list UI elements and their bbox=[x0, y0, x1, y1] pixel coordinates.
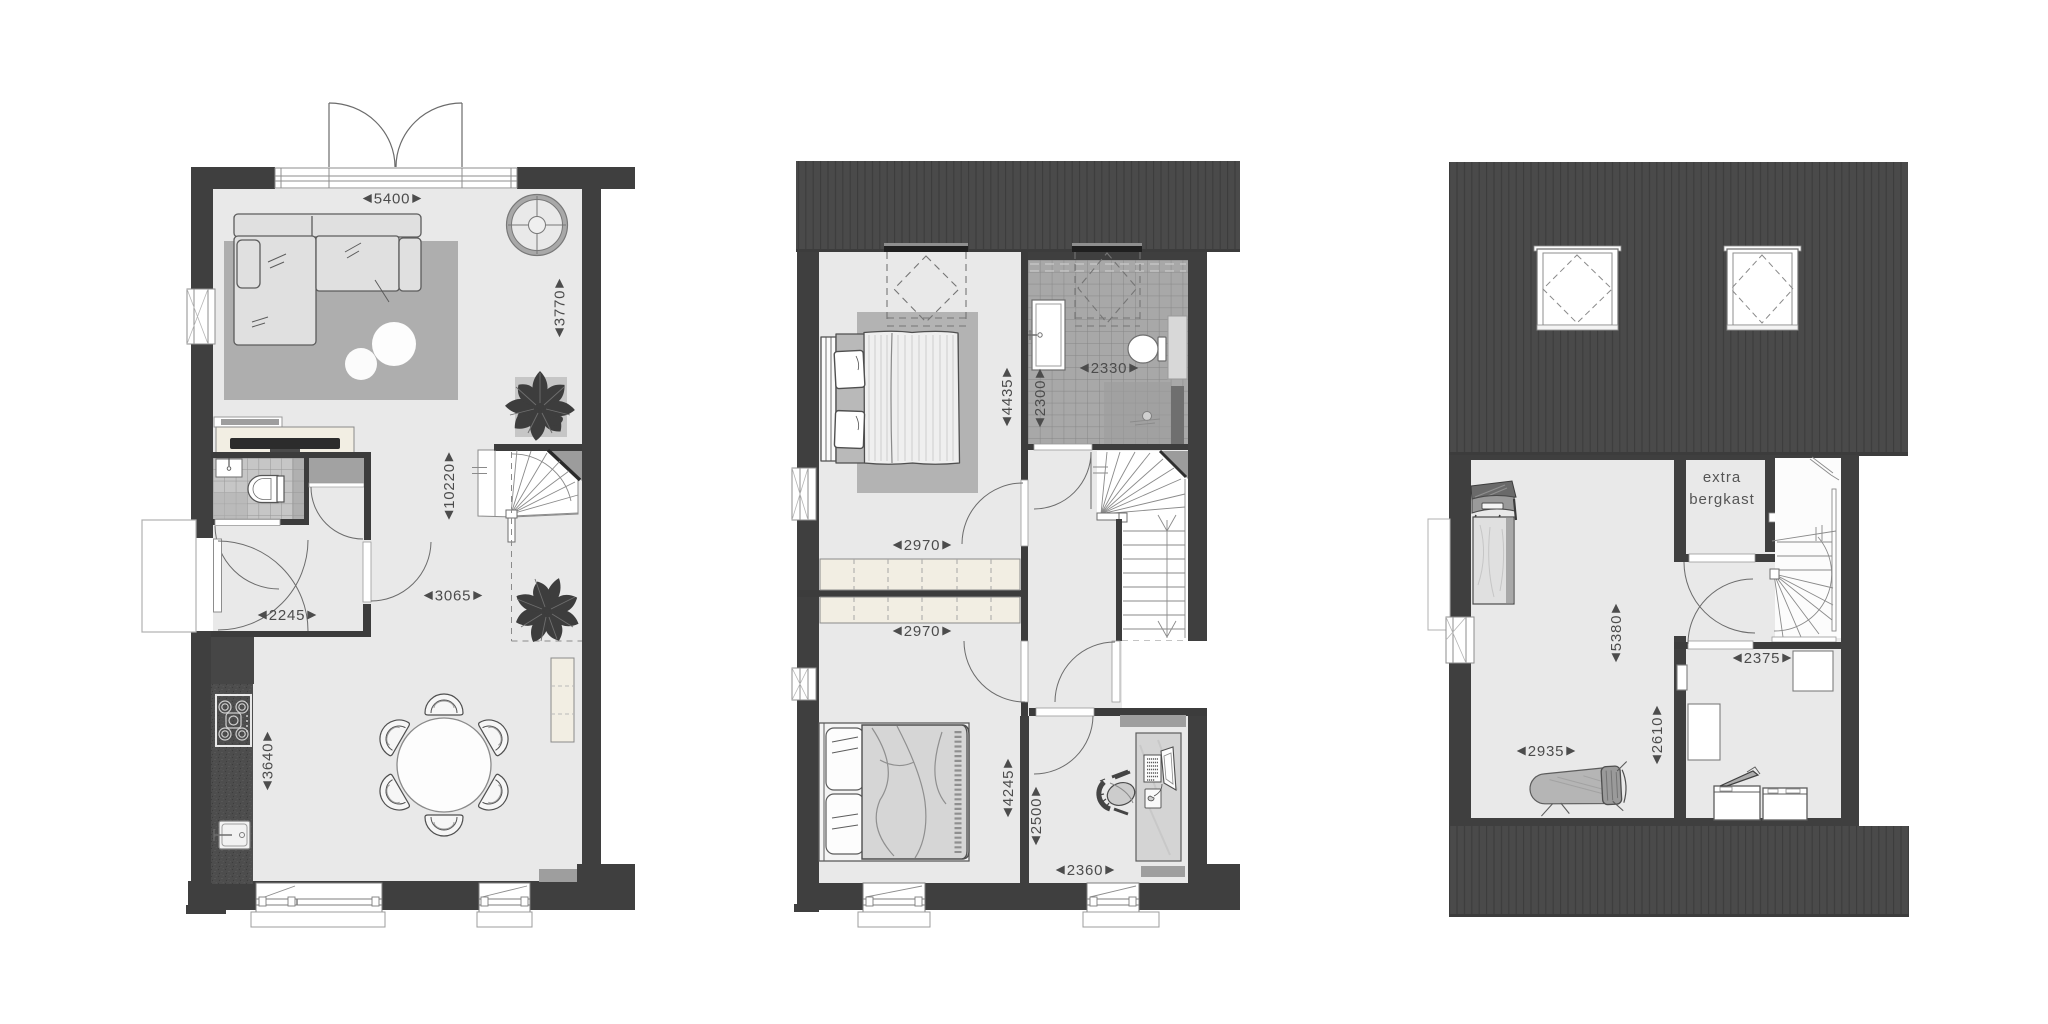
svg-text:2375: 2375 bbox=[1744, 650, 1781, 667]
svg-text:3065: 3065 bbox=[435, 588, 472, 605]
svg-text:2970: 2970 bbox=[904, 537, 941, 554]
svg-text:2500: 2500 bbox=[1028, 798, 1045, 835]
svg-text:3770: 3770 bbox=[552, 290, 569, 327]
svg-text:2245: 2245 bbox=[269, 607, 306, 624]
svg-text:2610: 2610 bbox=[1649, 717, 1666, 754]
svg-text:2300: 2300 bbox=[1032, 380, 1049, 417]
svg-text:4245: 4245 bbox=[1000, 770, 1017, 807]
svg-text:2970: 2970 bbox=[904, 623, 941, 640]
svg-text:2330: 2330 bbox=[1091, 360, 1128, 377]
svg-text:extra: extra bbox=[1703, 469, 1741, 486]
svg-text:3640: 3640 bbox=[260, 743, 277, 780]
svg-text:bergkast: bergkast bbox=[1689, 491, 1755, 508]
svg-text:5380: 5380 bbox=[1608, 615, 1625, 652]
svg-text:2360: 2360 bbox=[1067, 862, 1104, 879]
svg-text:4435: 4435 bbox=[999, 379, 1016, 416]
svg-text:2935: 2935 bbox=[1528, 743, 1565, 760]
svg-text:5400: 5400 bbox=[374, 191, 411, 208]
svg-text:10220: 10220 bbox=[441, 463, 458, 509]
